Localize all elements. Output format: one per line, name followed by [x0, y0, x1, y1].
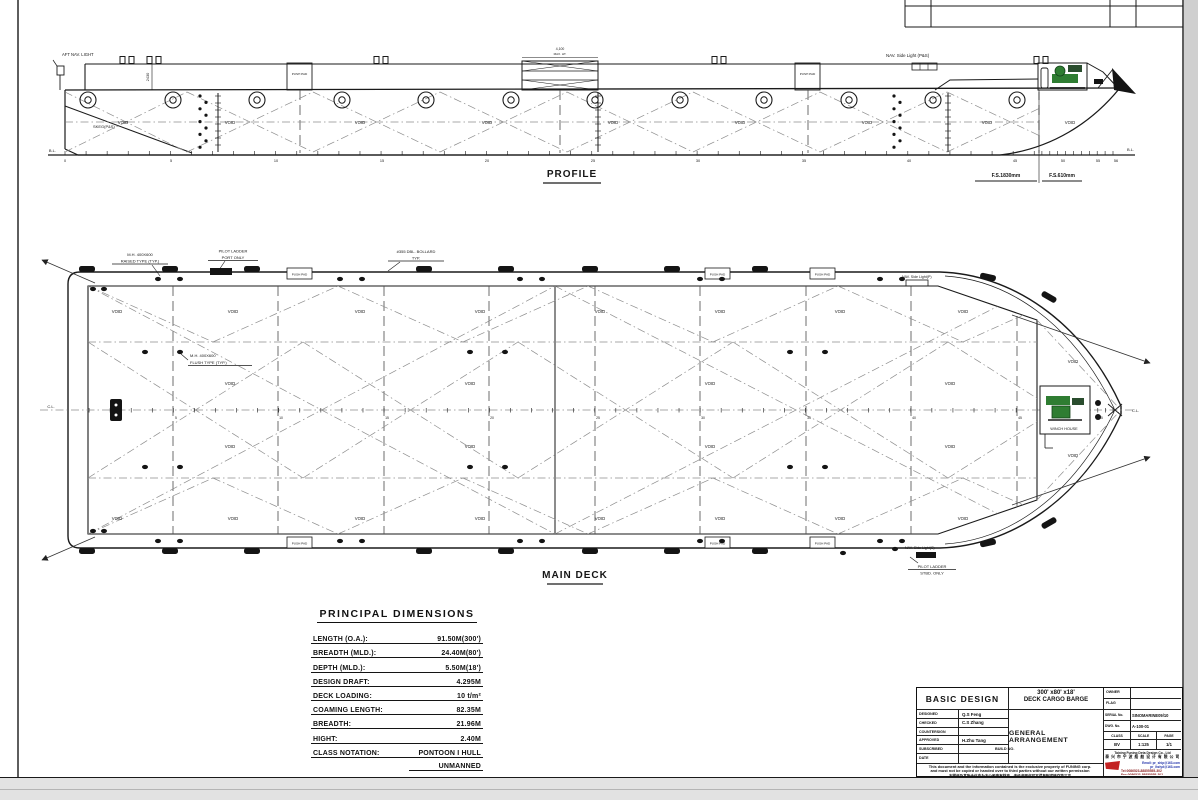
dimension-row: HIGHT:2.40M: [311, 729, 483, 743]
void-label: VOID: [355, 516, 366, 521]
basic-design-cell: BASIC DESIGN: [917, 688, 1009, 710]
principal-dimensions-title: PRINCIPAL DIMENSIONS: [317, 608, 477, 623]
void-label: VOID: [465, 381, 476, 386]
push-pad-label: PUSH PAD: [800, 72, 816, 76]
sheet-margin-bottom: [0, 777, 1198, 800]
profile-title: PROFILE: [547, 169, 597, 180]
dimension-row: CLASS NOTATION:PONTOON I HULL: [311, 744, 483, 758]
void-label: VOID: [595, 309, 606, 314]
void-label: VOID: [112, 516, 123, 521]
company-logo: [1105, 761, 1120, 770]
baseline-label: B.L.: [1127, 147, 1134, 152]
push-pad-label: PUSH PAD: [710, 273, 726, 277]
principal-dimensions-rows: LENGTH (O.A.):91.50M(300')BREADTH (MLD.)…: [311, 630, 483, 771]
void-label: VOID: [355, 120, 366, 125]
void-label: VOID: [228, 309, 239, 314]
dimension-label: COAMING LENGTH:: [311, 707, 383, 714]
push-pad-label: PUSH PAD: [815, 273, 831, 277]
disclaimer-cn: 本图纸及其所含信息为本公司专有财产，未经书面许可不得复制或转交第三方: [917, 774, 1103, 776]
dimension-value: 91.50M(300'): [437, 636, 483, 643]
dimension-label: BREADTH:: [311, 721, 351, 728]
void-label: VOID: [225, 444, 236, 449]
signature-name: C.S Zhang: [959, 719, 1008, 727]
main-deck-title: MAIN DECK: [542, 570, 608, 581]
frame-number: 5: [170, 159, 172, 163]
drawing-sheet: 051015202530354045505556B.L.B.L.SKEG(P&S…: [0, 0, 1198, 800]
company-fax: Fax:0086523-88855555-302: [1121, 773, 1180, 775]
signature-row: COUNTERSIGN: [917, 728, 1008, 737]
void-label: VOID: [1068, 453, 1079, 458]
nav-light-p-label: NAV. Side Light(P): [902, 275, 932, 279]
centerline-label: C.L.: [47, 404, 54, 409]
dimension-value: 82.35M: [456, 707, 483, 714]
frame-number: 20: [490, 416, 494, 420]
frame-number: 55: [1096, 159, 1100, 163]
owner-value: [1131, 688, 1181, 699]
main-deck-view: 510152025303540455055VOIDVOIDVOIDVOIDVOI…: [40, 249, 1198, 585]
company-cell: Taixing Funing Deta Design Co., Ltd 泰 兴 …: [1104, 750, 1181, 775]
fs-dimension: F.S.610mm: [1049, 173, 1075, 179]
dimension-label: DECK LOADING:: [311, 693, 372, 700]
bollard-label: TYP.: [412, 256, 420, 261]
void-label: VOID: [608, 120, 619, 125]
disclaimer-cell: This document and the information contai…: [917, 763, 1104, 776]
pilot-ladder-stbd-label: PILOT LADDER: [918, 564, 947, 569]
dimension-value: UNMANNED: [409, 763, 483, 771]
scale-label: SCALE: [1131, 732, 1157, 740]
frame-number: 15: [385, 416, 389, 420]
dwg-no-label: DWG. No.: [1104, 721, 1131, 732]
winch-icon: [1052, 74, 1078, 83]
void-label: VOID: [1065, 120, 1076, 125]
ga-drawing: 051015202530354045505556B.L.B.L.SKEG(P&S…: [0, 0, 1198, 800]
drawing-title-cell: GENERAL ARRANGEMENT: [1009, 710, 1104, 763]
void-label: VOID: [835, 516, 846, 521]
manhole-raised-label: RAISED TYPE (TYP.): [121, 259, 160, 264]
page-value: 1/1: [1157, 740, 1181, 750]
void-label: VOID: [465, 444, 476, 449]
void-label: VOID: [112, 309, 123, 314]
frame-number: 10: [279, 416, 283, 420]
signature-rows: DESIGNEDQ.S FengCHECKEDC.S ZhangCOUNTERS…: [917, 710, 1009, 763]
barge-size-line1: 300' x80' x18': [1009, 690, 1103, 696]
dimension-label: BREADTH (MLD.):: [311, 650, 376, 657]
frame-number: 30: [701, 416, 705, 420]
signature-role-label: COUNTERSIGN: [917, 728, 959, 736]
void-label: VOID: [228, 516, 239, 521]
frame-number: 0: [64, 159, 66, 163]
dimension-row: UNMANNED: [311, 758, 483, 771]
flag-label: FLAG: [1104, 699, 1131, 710]
nav-light-icon: [906, 280, 928, 286]
void-label: VOID: [715, 309, 726, 314]
signature-role-label: APPROVED: [917, 736, 959, 744]
dimension-text: 4,100: [556, 47, 565, 51]
title-block: BASIC DESIGN DESIGNEDQ.S FengCHECKEDC.S …: [916, 687, 1183, 777]
flag-value: [1131, 699, 1181, 710]
scale-value: 1:125: [1131, 740, 1157, 750]
push-pad-box: [795, 63, 820, 90]
void-label: VOID: [945, 381, 956, 386]
dimension-value: 4.295M: [456, 679, 483, 686]
dwg-no-value: A-100-01: [1131, 721, 1181, 732]
frame-number: 45: [1013, 159, 1017, 163]
void-label: VOID: [595, 516, 606, 521]
frame-number: 40: [907, 159, 911, 163]
dimension-text: MAX. HT.: [554, 52, 567, 56]
void-label: VOID: [982, 120, 993, 125]
page-label: PAGE: [1157, 732, 1181, 740]
dimension-row: BREADTH:21.96M: [311, 715, 483, 729]
baseline-label: B.L.: [49, 148, 56, 153]
centerline-label: C.L.: [1132, 408, 1139, 413]
void-label: VOID: [715, 516, 726, 521]
pilot-ladder-mark: [210, 268, 232, 275]
dimension-label: DESIGN DRAFT:: [311, 679, 370, 686]
signature-name: [959, 754, 1008, 763]
void-label: VOID: [118, 120, 129, 125]
dimension-row: LENGTH (O.A.):91.50M(300'): [311, 630, 483, 644]
class-value: BV: [1104, 740, 1131, 750]
signature-row: APPROVEDH.Zhu Tang: [917, 736, 1008, 745]
frame-number: 50: [1061, 159, 1065, 163]
frame-number: 20: [485, 159, 489, 163]
sheet-borders: [18, 0, 1183, 777]
fs-dimension: F.S.1830mm: [992, 173, 1021, 179]
void-label: VOID: [835, 309, 846, 314]
frame-number: 15: [380, 159, 384, 163]
void-label: VOID: [475, 309, 486, 314]
frame-number: 25: [591, 159, 595, 163]
build-no-label: BUILD NO.: [995, 747, 1035, 751]
signature-name: H.Zhu Tang: [959, 736, 1008, 744]
frame-number: 10: [274, 159, 278, 163]
profile-view: 051015202530354045505556B.L.B.L.SKEG(P&S…: [48, 47, 1136, 183]
frame-number: 35: [802, 159, 806, 163]
dimension-row: DECK LOADING:10 t/m²: [311, 687, 483, 701]
void-label: VOID: [862, 120, 873, 125]
aft-nav-light-icon: [57, 66, 64, 75]
frame-number: 35: [807, 416, 811, 420]
push-pad-label: PUSH PAD: [815, 542, 831, 546]
dimension-label: DEPTH (MLD.):: [311, 665, 365, 672]
nav-side-light-label: NAV. Side Light (P&S): [886, 53, 930, 58]
void-label: VOID: [945, 444, 956, 449]
void-label: VOID: [958, 309, 969, 314]
void-label: VOID: [735, 120, 746, 125]
manhole-raised-label: M.H. 400X600: [127, 252, 153, 257]
signature-name: Q.S Feng: [959, 710, 1008, 718]
void-label: VOID: [225, 381, 236, 386]
principal-dimensions-table: PRINCIPAL DIMENSIONS LENGTH (O.A.):91.50…: [311, 608, 483, 771]
bollard-label: #355 DBL. BOLLARD: [397, 249, 436, 254]
frame-number: 40: [912, 416, 916, 420]
dimension-value: 2.40M: [461, 736, 483, 743]
push-pad-box: [287, 63, 312, 90]
skeg-label: SKEG(P&S): [93, 124, 115, 129]
dimension-label: LENGTH (O.A.):: [311, 636, 368, 643]
signature-role-label: CHECKED: [917, 719, 959, 727]
manhole-flush-label: FLUSH TYPE (TYP.): [190, 360, 227, 365]
signature-role-label: DATE: [917, 754, 959, 763]
frame-number: 30: [696, 159, 700, 163]
owner-label: OWNER: [1104, 688, 1131, 699]
aft-nav-light-label: AFT NAV. LIGHT: [62, 52, 94, 57]
barge-size-cell: 300' x80' x18' DECK CARGO BARGE: [1009, 688, 1104, 710]
frame-number: 5: [175, 416, 177, 420]
nav-light-icon: [916, 552, 936, 558]
push-pad-label: PUSH PAD: [292, 72, 308, 76]
sheet-margin-right: [1184, 0, 1198, 800]
pilot-ladder-port-label: PORT ONLY: [222, 255, 245, 260]
signature-role-label: SUBSCRIBED: [917, 745, 959, 753]
void-label: VOID: [225, 120, 236, 125]
void-label: VOID: [475, 516, 486, 521]
company-name-cn: 泰 兴 市 宁 波 船 舶 设 计 有 限 公 司: [1105, 755, 1180, 760]
winch-icon: [1046, 396, 1070, 405]
void-label: VOID: [958, 516, 969, 521]
void-label: VOID: [1068, 359, 1079, 364]
dimension-row: BREADTH (MLD.):24.40M(80'): [311, 644, 483, 658]
dimension-row: DEPTH (MLD.):5.50M(18'): [311, 658, 483, 672]
frame-number: 56: [1114, 159, 1118, 163]
dimension-row: DESIGN DRAFT:4.295M: [311, 673, 483, 687]
dimension-label: HIGHT:: [311, 736, 338, 743]
push-pad-label: PUSH PAD: [292, 273, 308, 277]
serial-label: SERIAL No.: [1104, 710, 1131, 721]
frame-number: 25: [596, 416, 600, 420]
manhole-flush-label: M.H. 400X600: [190, 353, 216, 358]
signature-name: [959, 728, 1008, 736]
void-label: VOID: [355, 309, 366, 314]
dimension-text: 2430: [146, 73, 150, 81]
dimension-value: 24.40M(80'): [441, 650, 483, 657]
signature-row: DATE: [917, 754, 1008, 763]
dimension-label: CLASS NOTATION:: [311, 750, 380, 757]
void-label: VOID: [482, 120, 493, 125]
winch-house-label: WINCH HOUSE: [1050, 427, 1078, 431]
barge-size-line2: DECK CARGO BARGE: [1009, 697, 1103, 703]
stem-flag-icon: [1112, 68, 1136, 94]
dimension-row: COAMING LENGTH:82.35M: [311, 701, 483, 715]
pilot-ladder-stbd-label: STBD. ONLY: [920, 571, 944, 576]
signature-row: DESIGNEDQ.S Feng: [917, 710, 1008, 719]
signature-role-label: DESIGNED: [917, 710, 959, 718]
pilot-ladder-port-label: PILOT LADDER: [219, 249, 248, 254]
nav-light-s-label: NAV. Side Light(S): [905, 546, 935, 550]
class-label: CLASS: [1104, 732, 1131, 740]
dimension-value: PONTOON I HULL: [418, 750, 483, 757]
void-label: VOID: [705, 444, 716, 449]
dimension-value: 21.96M: [456, 721, 483, 728]
dimension-value: 5.50M(18'): [445, 665, 483, 672]
serial-value: SINOMARINE09/10: [1131, 710, 1181, 721]
frame-number: 45: [1018, 416, 1022, 420]
dimension-value: 10 t/m²: [457, 693, 483, 700]
void-label: VOID: [705, 381, 716, 386]
signature-row: CHECKEDC.S Zhang: [917, 719, 1008, 728]
push-pad-label: PUSH PAD: [292, 542, 308, 546]
